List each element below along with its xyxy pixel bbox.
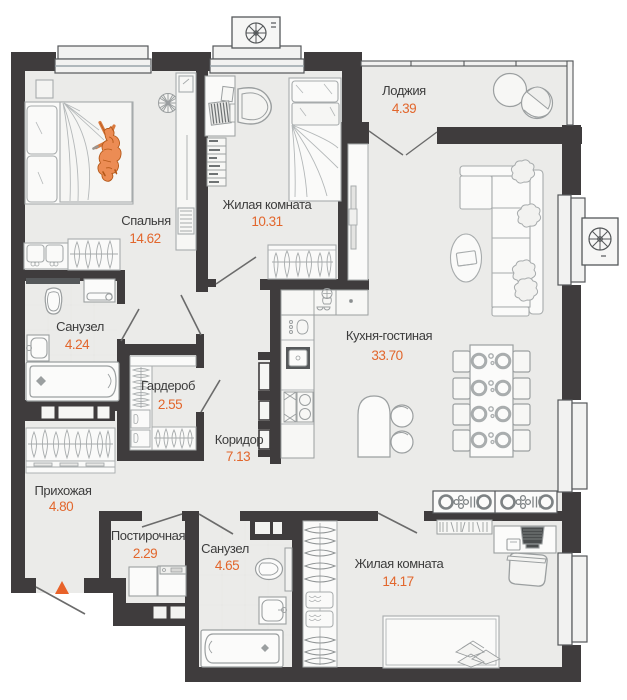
svg-text:33.70: 33.70	[371, 348, 402, 363]
svg-text:4.65: 4.65	[215, 558, 239, 573]
svg-text:Прихожая: Прихожая	[34, 483, 91, 498]
svg-text:Лоджия: Лоджия	[382, 83, 426, 98]
svg-text:Жилая комната: Жилая комната	[223, 197, 313, 212]
svg-text:2.29: 2.29	[133, 546, 157, 561]
svg-text:10.31: 10.31	[251, 214, 282, 229]
svg-text:Санузел: Санузел	[56, 319, 104, 334]
svg-text:Гардероб: Гардероб	[141, 378, 195, 393]
svg-text:2.55: 2.55	[158, 397, 182, 412]
svg-text:Спальня: Спальня	[121, 213, 171, 228]
svg-text:14.17: 14.17	[382, 574, 413, 589]
svg-text:Коридор: Коридор	[215, 432, 264, 447]
svg-text:4.39: 4.39	[392, 101, 416, 116]
svg-text:Санузел: Санузел	[201, 541, 249, 556]
svg-text:Кухня-гостиная: Кухня-гостиная	[346, 328, 433, 343]
svg-text:Постирочная: Постирочная	[111, 528, 186, 543]
svg-text:7.13: 7.13	[226, 449, 250, 464]
svg-text:Жилая комната: Жилая комната	[355, 556, 445, 571]
svg-text:4.24: 4.24	[65, 337, 90, 352]
svg-text:4.80: 4.80	[49, 499, 73, 514]
svg-text:14.62: 14.62	[129, 231, 160, 246]
